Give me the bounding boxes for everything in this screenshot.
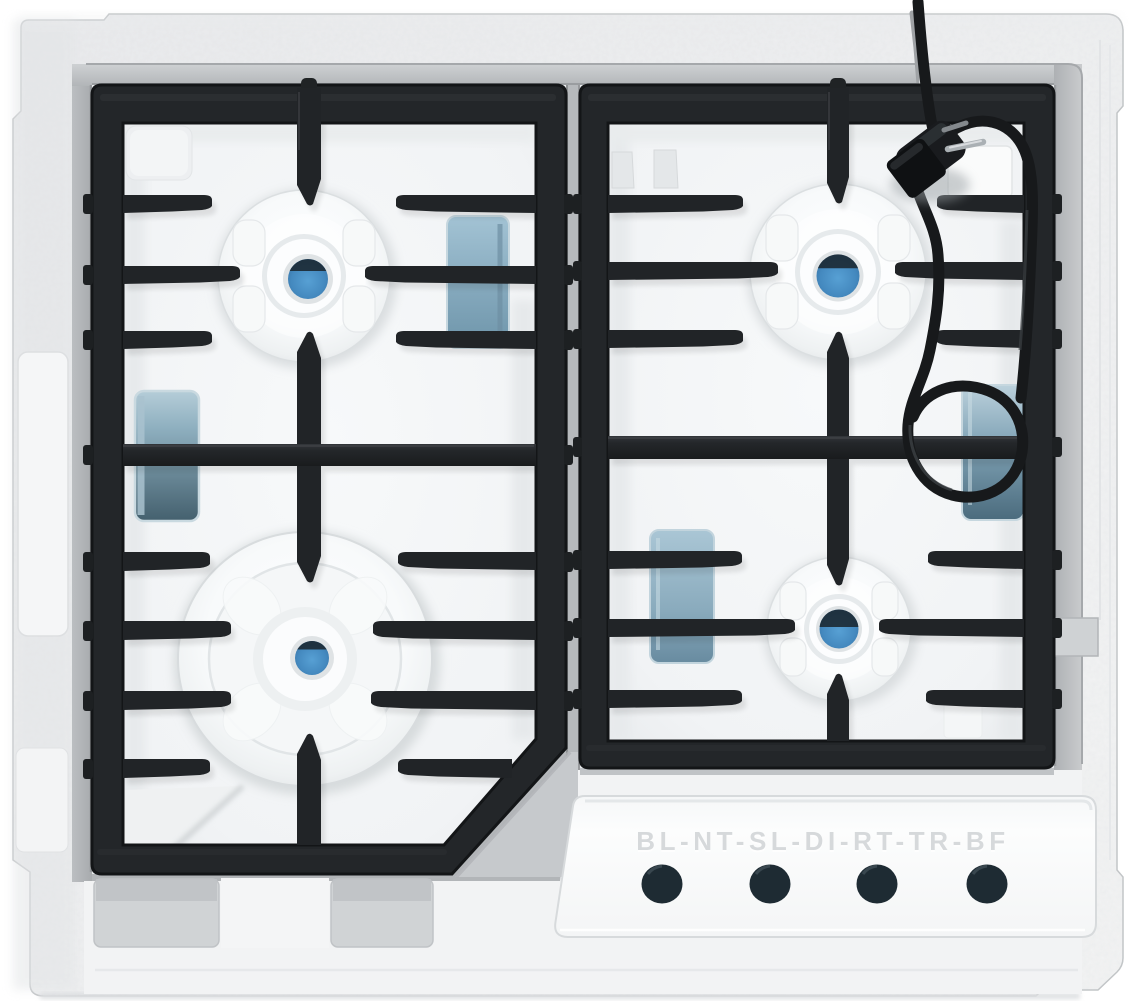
svg-text:BL-NT-SL-DI-RT-TR-BF: BL-NT-SL-DI-RT-TR-BF xyxy=(636,826,1010,856)
